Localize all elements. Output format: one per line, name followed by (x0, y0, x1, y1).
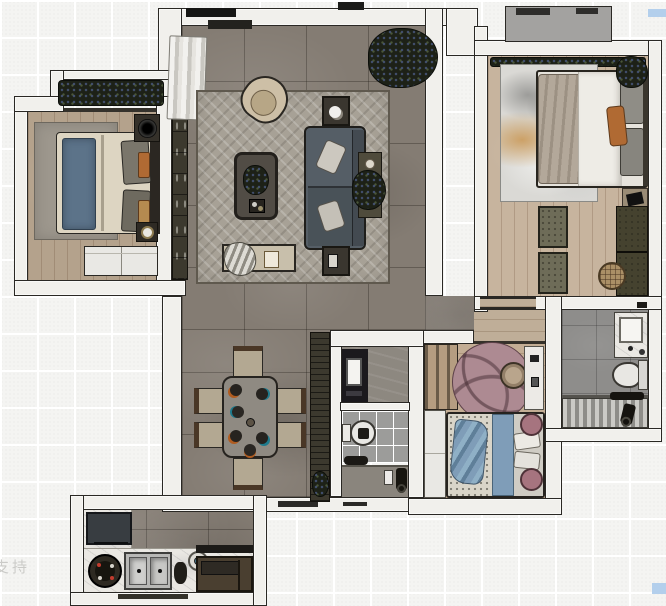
kitchen-window-sill (118, 594, 188, 599)
wall-master-top (474, 40, 662, 56)
plate-1 (230, 384, 242, 396)
kid-pillow-pink-1 (520, 413, 543, 436)
wall-ac-unit (338, 2, 364, 10)
vestibule-floor[interactable] (474, 310, 545, 344)
dining-chair-left-2[interactable] (194, 422, 224, 448)
kid-pillow-pink-2 (520, 468, 543, 491)
wall-hall-left (162, 296, 182, 512)
wall-master-left (474, 26, 488, 312)
wardrobe-top-line (85, 253, 157, 254)
bath-door-threshold[interactable] (343, 502, 367, 506)
sofa-pillow-1 (315, 139, 347, 175)
tv-cabinet[interactable] (172, 112, 188, 280)
ensuite-toilet-tank (638, 360, 648, 390)
armchair-seat (245, 85, 281, 121)
bedroom2-accent-pillow-1 (138, 152, 150, 178)
master-corner-plant[interactable] (616, 56, 648, 88)
floor-plan-canvas: 支持 (0, 0, 666, 606)
coffee-table-tray (249, 199, 265, 213)
burner-dot-1 (97, 563, 101, 567)
side-table-cup (365, 159, 375, 169)
end-table-top[interactable] (322, 96, 350, 126)
bedroom2-tray[interactable] (136, 222, 158, 242)
wall-ensuite-bottom (545, 428, 662, 442)
bedroom2-wardrobe[interactable] (84, 246, 158, 276)
flower-vase (329, 106, 341, 118)
fridge-handle (94, 542, 128, 544)
master-bench-2[interactable] (538, 252, 568, 294)
sideboard[interactable] (310, 332, 330, 502)
wall-shelf-decor (186, 8, 236, 17)
plate-2 (256, 388, 268, 400)
plate-5 (256, 432, 268, 444)
wall-kid-bath-divider (545, 296, 562, 515)
bedroom2-accent-pillow-2 (138, 200, 150, 224)
kitchen-sink[interactable] (124, 552, 172, 590)
toilet-lid-detail (358, 428, 369, 439)
bench-book (264, 251, 279, 268)
wall-bedroom2-bottom (14, 280, 186, 296)
sideboard-plant (312, 471, 329, 497)
wall-kid-left (408, 330, 424, 498)
kid-pouf[interactable] (500, 362, 527, 389)
burner-dot-2 (110, 564, 114, 568)
plate-4 (230, 430, 242, 442)
faucet-icon (628, 346, 633, 351)
kid-desk[interactable] (524, 346, 544, 410)
ensuite-shower-slats[interactable] (562, 398, 648, 428)
cabinet-top-shelf (201, 561, 239, 575)
dining-chair-right-2[interactable] (276, 422, 306, 448)
kid-blue-throw (449, 418, 490, 485)
coffee-table[interactable] (234, 152, 278, 220)
dining-chair-left-1[interactable] (194, 388, 224, 414)
master-headboard (643, 72, 648, 186)
kitchen-grinder[interactable] (174, 562, 187, 584)
desk-item-1 (530, 355, 539, 362)
master-pouf-rattan[interactable] (598, 262, 626, 290)
dining-chair-top[interactable] (233, 346, 263, 378)
kid-wardrobe-white[interactable] (424, 410, 446, 498)
dining-chair-bottom[interactable] (233, 458, 263, 490)
wall-kitchen-right (253, 495, 267, 606)
cabinet-door-line (238, 560, 240, 590)
side-table-plant[interactable] (352, 170, 386, 210)
bedroom2-headboard (150, 132, 160, 234)
bedroom2-nightstand[interactable] (134, 114, 160, 142)
ensuite-vanity[interactable] (614, 312, 648, 358)
wall-bedroom2-top (14, 96, 64, 112)
centerpiece (246, 418, 255, 427)
console-shelf[interactable] (208, 20, 252, 29)
wall-kid-bottom (408, 498, 562, 515)
kitchen-hood-bar (196, 545, 253, 553)
wardrobe-door-line (425, 453, 445, 454)
ac-ledge-mark (516, 8, 550, 15)
sink-basin-2 (150, 557, 168, 585)
coffee-table-plant (243, 165, 269, 195)
dining-table[interactable] (222, 376, 278, 458)
kitchen-fridge[interactable] (86, 512, 132, 545)
vanity-item (639, 349, 645, 355)
bed-fold (101, 135, 104, 231)
wall-bathmain-top (330, 330, 424, 347)
corridor-floor[interactable] (425, 296, 474, 330)
sink-basin-1 (129, 557, 147, 585)
ac-ledge-mark2 (576, 8, 598, 14)
wardrobe-divider (121, 247, 122, 275)
wall-bedroom2-left (14, 96, 28, 296)
wall-bay-top (50, 70, 172, 80)
balcony-plants[interactable] (58, 80, 164, 106)
desk-item-2 (531, 377, 539, 387)
bathmain-shower-set[interactable] (396, 468, 407, 490)
ensuite-wall-item (637, 302, 647, 308)
shower-head-icon (397, 484, 406, 493)
bathmain-mirror (346, 358, 362, 386)
master-bench-1[interactable] (538, 206, 568, 248)
nightstand-items (626, 191, 644, 206)
plate-6 (244, 444, 256, 456)
wall-bathmain-partition (340, 402, 410, 411)
wall-master-right (648, 40, 662, 442)
speaker-icon (138, 119, 157, 138)
bathmain-shower-panel (384, 470, 393, 485)
burner-dot-4 (110, 576, 114, 580)
kitchen-cabinet-dark[interactable] (196, 556, 253, 592)
blue-mark-top-right (648, 9, 666, 17)
end-table-bottom[interactable] (322, 246, 350, 276)
burner-dot-3 (98, 576, 102, 580)
bedroom2-window-sill (64, 108, 156, 112)
tray-plate (141, 226, 154, 239)
bathmain-toilet[interactable] (350, 420, 376, 446)
end-table-decor (328, 254, 338, 268)
kitchen-cooktop[interactable] (88, 554, 122, 588)
kid-blue-band (492, 414, 514, 496)
plate-3 (232, 406, 244, 418)
bedroom2-blue-runner[interactable] (62, 138, 96, 230)
blue-mark-bottom-right (652, 583, 666, 594)
bathmain-vanity[interactable] (342, 349, 368, 402)
bathmain-shelf (346, 391, 362, 396)
wall-kitchen-top (70, 495, 267, 510)
bench[interactable] (222, 244, 296, 272)
bathmain-mat (344, 456, 368, 465)
wall-kitchen-left (70, 495, 84, 606)
ensuite-sink (619, 317, 643, 343)
ensuite-shower-bar (610, 392, 644, 400)
master-door-threshold[interactable] (480, 297, 536, 309)
dining-chair-right-1[interactable] (276, 388, 306, 414)
watermark-text: 支持 (0, 556, 30, 577)
kid-pillow-white-2 (513, 451, 541, 471)
master-wardrobe-divider (617, 251, 647, 253)
wall-bathmain-left (330, 330, 342, 497)
